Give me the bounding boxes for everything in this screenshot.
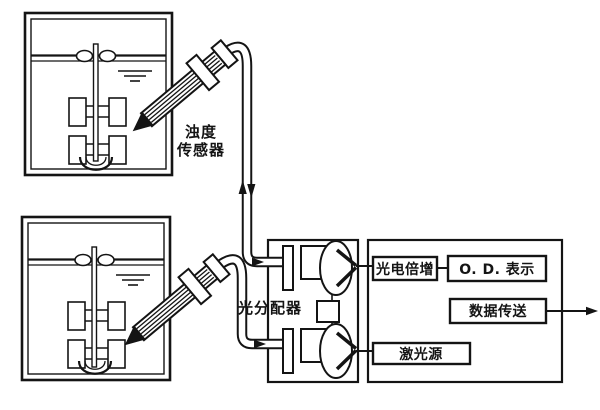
stirrer-shaft-icon bbox=[92, 247, 97, 367]
diagram-canvas: 浊度 传感器 光分配器 光电倍增 O. D. 表示 数据传送 激光源 bbox=[0, 0, 600, 410]
output-arrow-icon bbox=[586, 307, 598, 315]
turbidity-sensor-label-line2: 传感器 bbox=[176, 141, 225, 159]
lens-icon bbox=[320, 241, 352, 295]
od-display-label: O. D. 表示 bbox=[459, 261, 535, 278]
fermenter-tank-2 bbox=[22, 217, 170, 380]
stirrer-shaft-icon bbox=[94, 44, 99, 161]
light-distributor-label: 光分配器 bbox=[237, 299, 302, 317]
laser-source-label: 激光源 bbox=[399, 346, 443, 363]
lens-icon bbox=[320, 324, 352, 378]
fiber-terminal-bottom bbox=[283, 329, 293, 373]
fermenter-tank-1 bbox=[25, 13, 172, 175]
photomultiplier-label: 光电倍增 bbox=[375, 261, 434, 278]
beam-splitter-icon bbox=[317, 301, 339, 322]
system-diagram: 浊度 传感器 光分配器 光电倍增 O. D. 表示 数据传送 激光源 bbox=[0, 0, 600, 410]
optical-fiber-cable-1 bbox=[227, 47, 285, 262]
fiber-terminal-top bbox=[283, 246, 293, 290]
turbidity-sensor-label-line1: 浊度 bbox=[185, 123, 217, 141]
data-transfer-label: 数据传送 bbox=[469, 303, 527, 320]
